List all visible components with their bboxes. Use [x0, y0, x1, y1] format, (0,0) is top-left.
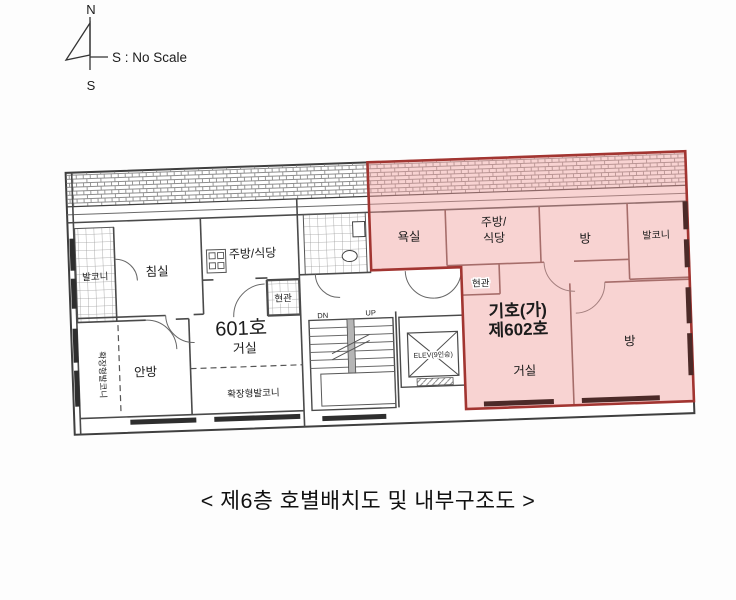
label-601-bedroom: 침실	[145, 264, 168, 279]
label-602-entrance: 현관	[472, 278, 490, 290]
label-601-master-bedroom: 안방	[134, 365, 158, 380]
label-601-entrance: 현관	[274, 293, 292, 305]
drawing-caption: < 제6층 호별배치도 및 내부구조도 >	[0, 484, 736, 515]
label-601-extended-balcony-vertical: 확장형발코니	[97, 351, 109, 398]
toilet-icon	[342, 250, 357, 262]
floorplan-page: N S : No Scale S	[0, 0, 736, 600]
label-602-kitchen-line1: 주방/	[481, 215, 508, 230]
label-602-designation-line1: 기호(가)	[488, 300, 547, 321]
sink-icon	[353, 221, 366, 236]
label-602-room-lower: 방	[624, 334, 636, 348]
scale-note: S : No Scale	[112, 50, 187, 65]
label-601-extended-balcony: 확장형발코니	[227, 387, 280, 401]
label-602-kitchen-line2: 식당	[483, 231, 506, 246]
label-602-designation-line2: 제602호	[488, 319, 549, 340]
floor-plan: 발코니 침실 주방/식당 현관 601호 거실 안방 확장형발코니 확장형발코니…	[66, 151, 695, 434]
compass-south-label: S	[87, 78, 96, 93]
stove-icon	[206, 249, 226, 273]
compass: N S : No Scale S	[66, 2, 187, 93]
label-601-living: 거실	[233, 340, 257, 356]
label-602-balcony: 발코니	[642, 229, 670, 242]
label-601-balcony: 발코니	[82, 271, 109, 283]
compass-arrow-icon	[66, 23, 90, 60]
label-602-bathroom: 욕실	[397, 230, 420, 245]
compass-north-label: N	[86, 2, 95, 17]
elevator-sill	[417, 378, 453, 386]
label-601-number: 601호	[215, 317, 268, 341]
label-602-room-upper: 방	[579, 232, 591, 246]
label-602-living: 거실	[513, 364, 536, 379]
label-stairs-down: DN	[317, 311, 328, 320]
label-601-kitchen: 주방/식당	[229, 246, 277, 262]
label-stairs-up: UP	[365, 308, 376, 317]
